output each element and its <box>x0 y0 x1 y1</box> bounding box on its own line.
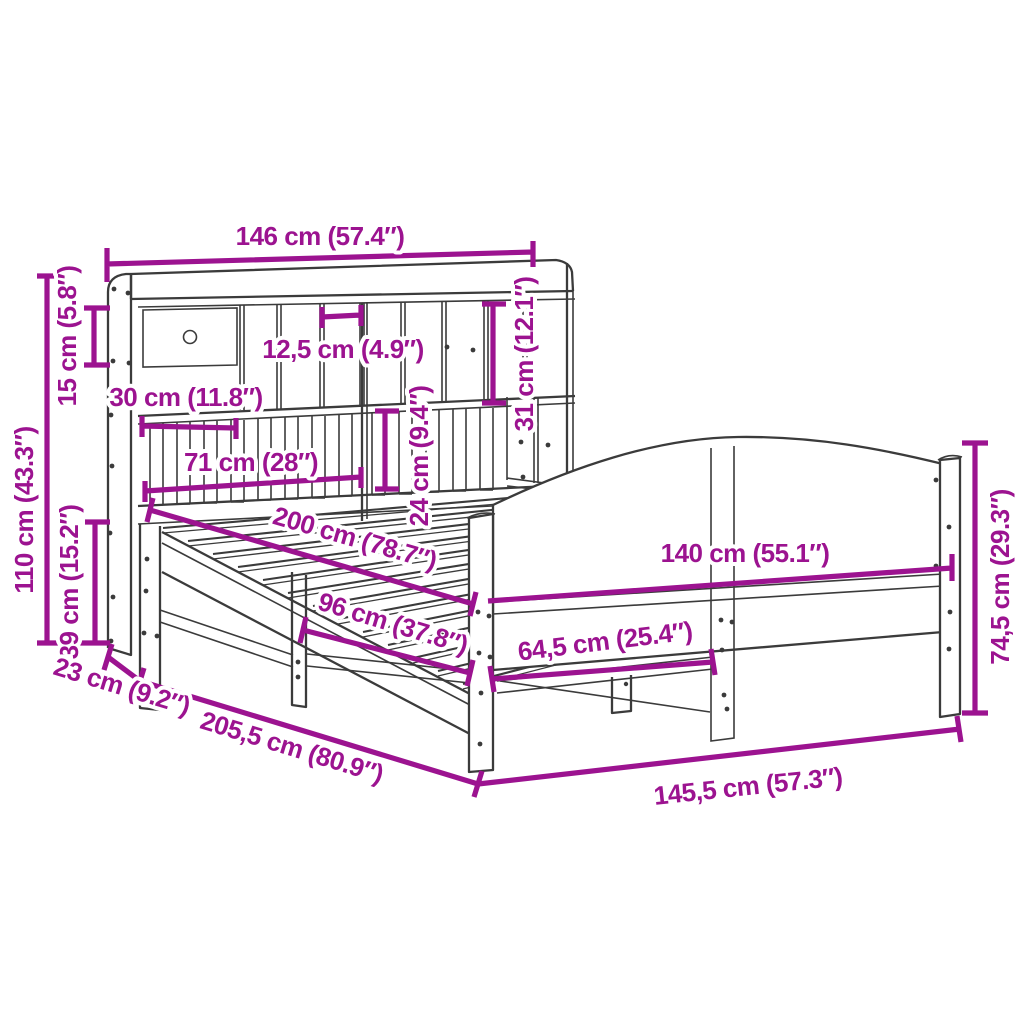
dim-label-frame-width: 145,5 cm (57.3″) <box>652 761 844 811</box>
dim-line-top-shelf-height <box>84 308 110 365</box>
dim-label-total-width: 146 cm (57.4″) <box>236 221 405 251</box>
dim-label-compartment-30: 30 cm (11.8″) <box>109 382 262 412</box>
dim-line-slat-section <box>375 411 399 489</box>
dim-label-base-height: 39 cm (15.2″) <box>54 505 84 660</box>
dim-label-shelf-opening: 31 cm (12.1″) <box>509 277 539 432</box>
footboard <box>467 437 962 772</box>
dim-line-shelf-opening <box>482 304 506 403</box>
dim-label-footboard-height: 74,5 cm (29.3″) <box>985 489 1015 665</box>
dim-label-mattress-width: 140 cm (55.1″) <box>661 538 830 568</box>
dim-label-slat-section: 24 cm (9.4″) <box>404 386 434 527</box>
dim-label-compartment-12-5: 12,5 cm (4.9″) <box>262 334 424 364</box>
dim-label-headboard-depth: 23 cm (9.2″) <box>50 651 193 721</box>
dim-line-compartment-12-5 <box>322 305 361 328</box>
dim-line-base-height <box>85 522 110 643</box>
dim-label-top-shelf-height: 15 cm (5.8″) <box>52 266 82 407</box>
dim-label-headboard-height: 110 cm (43.3″) <box>9 426 39 593</box>
diagram-svg: 146 cm (57.4″) 15 cm (5.8″) 110 cm (43.3… <box>0 0 1024 1024</box>
dim-label-compartment-71: 71 cm (28″) <box>184 447 318 477</box>
bed-dimension-diagram: 146 cm (57.4″) 15 cm (5.8″) 110 cm (43.3… <box>0 0 1024 1024</box>
